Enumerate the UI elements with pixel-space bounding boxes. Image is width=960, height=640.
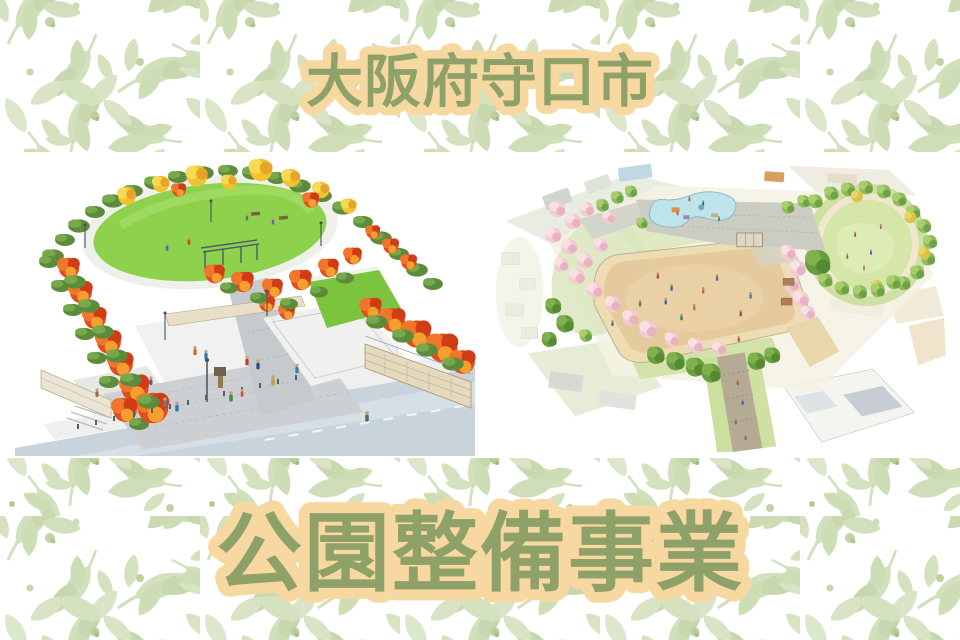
park-illustration-aerial <box>488 158 950 454</box>
park-illustration-autumn <box>10 156 480 456</box>
shelter <box>737 233 763 247</box>
